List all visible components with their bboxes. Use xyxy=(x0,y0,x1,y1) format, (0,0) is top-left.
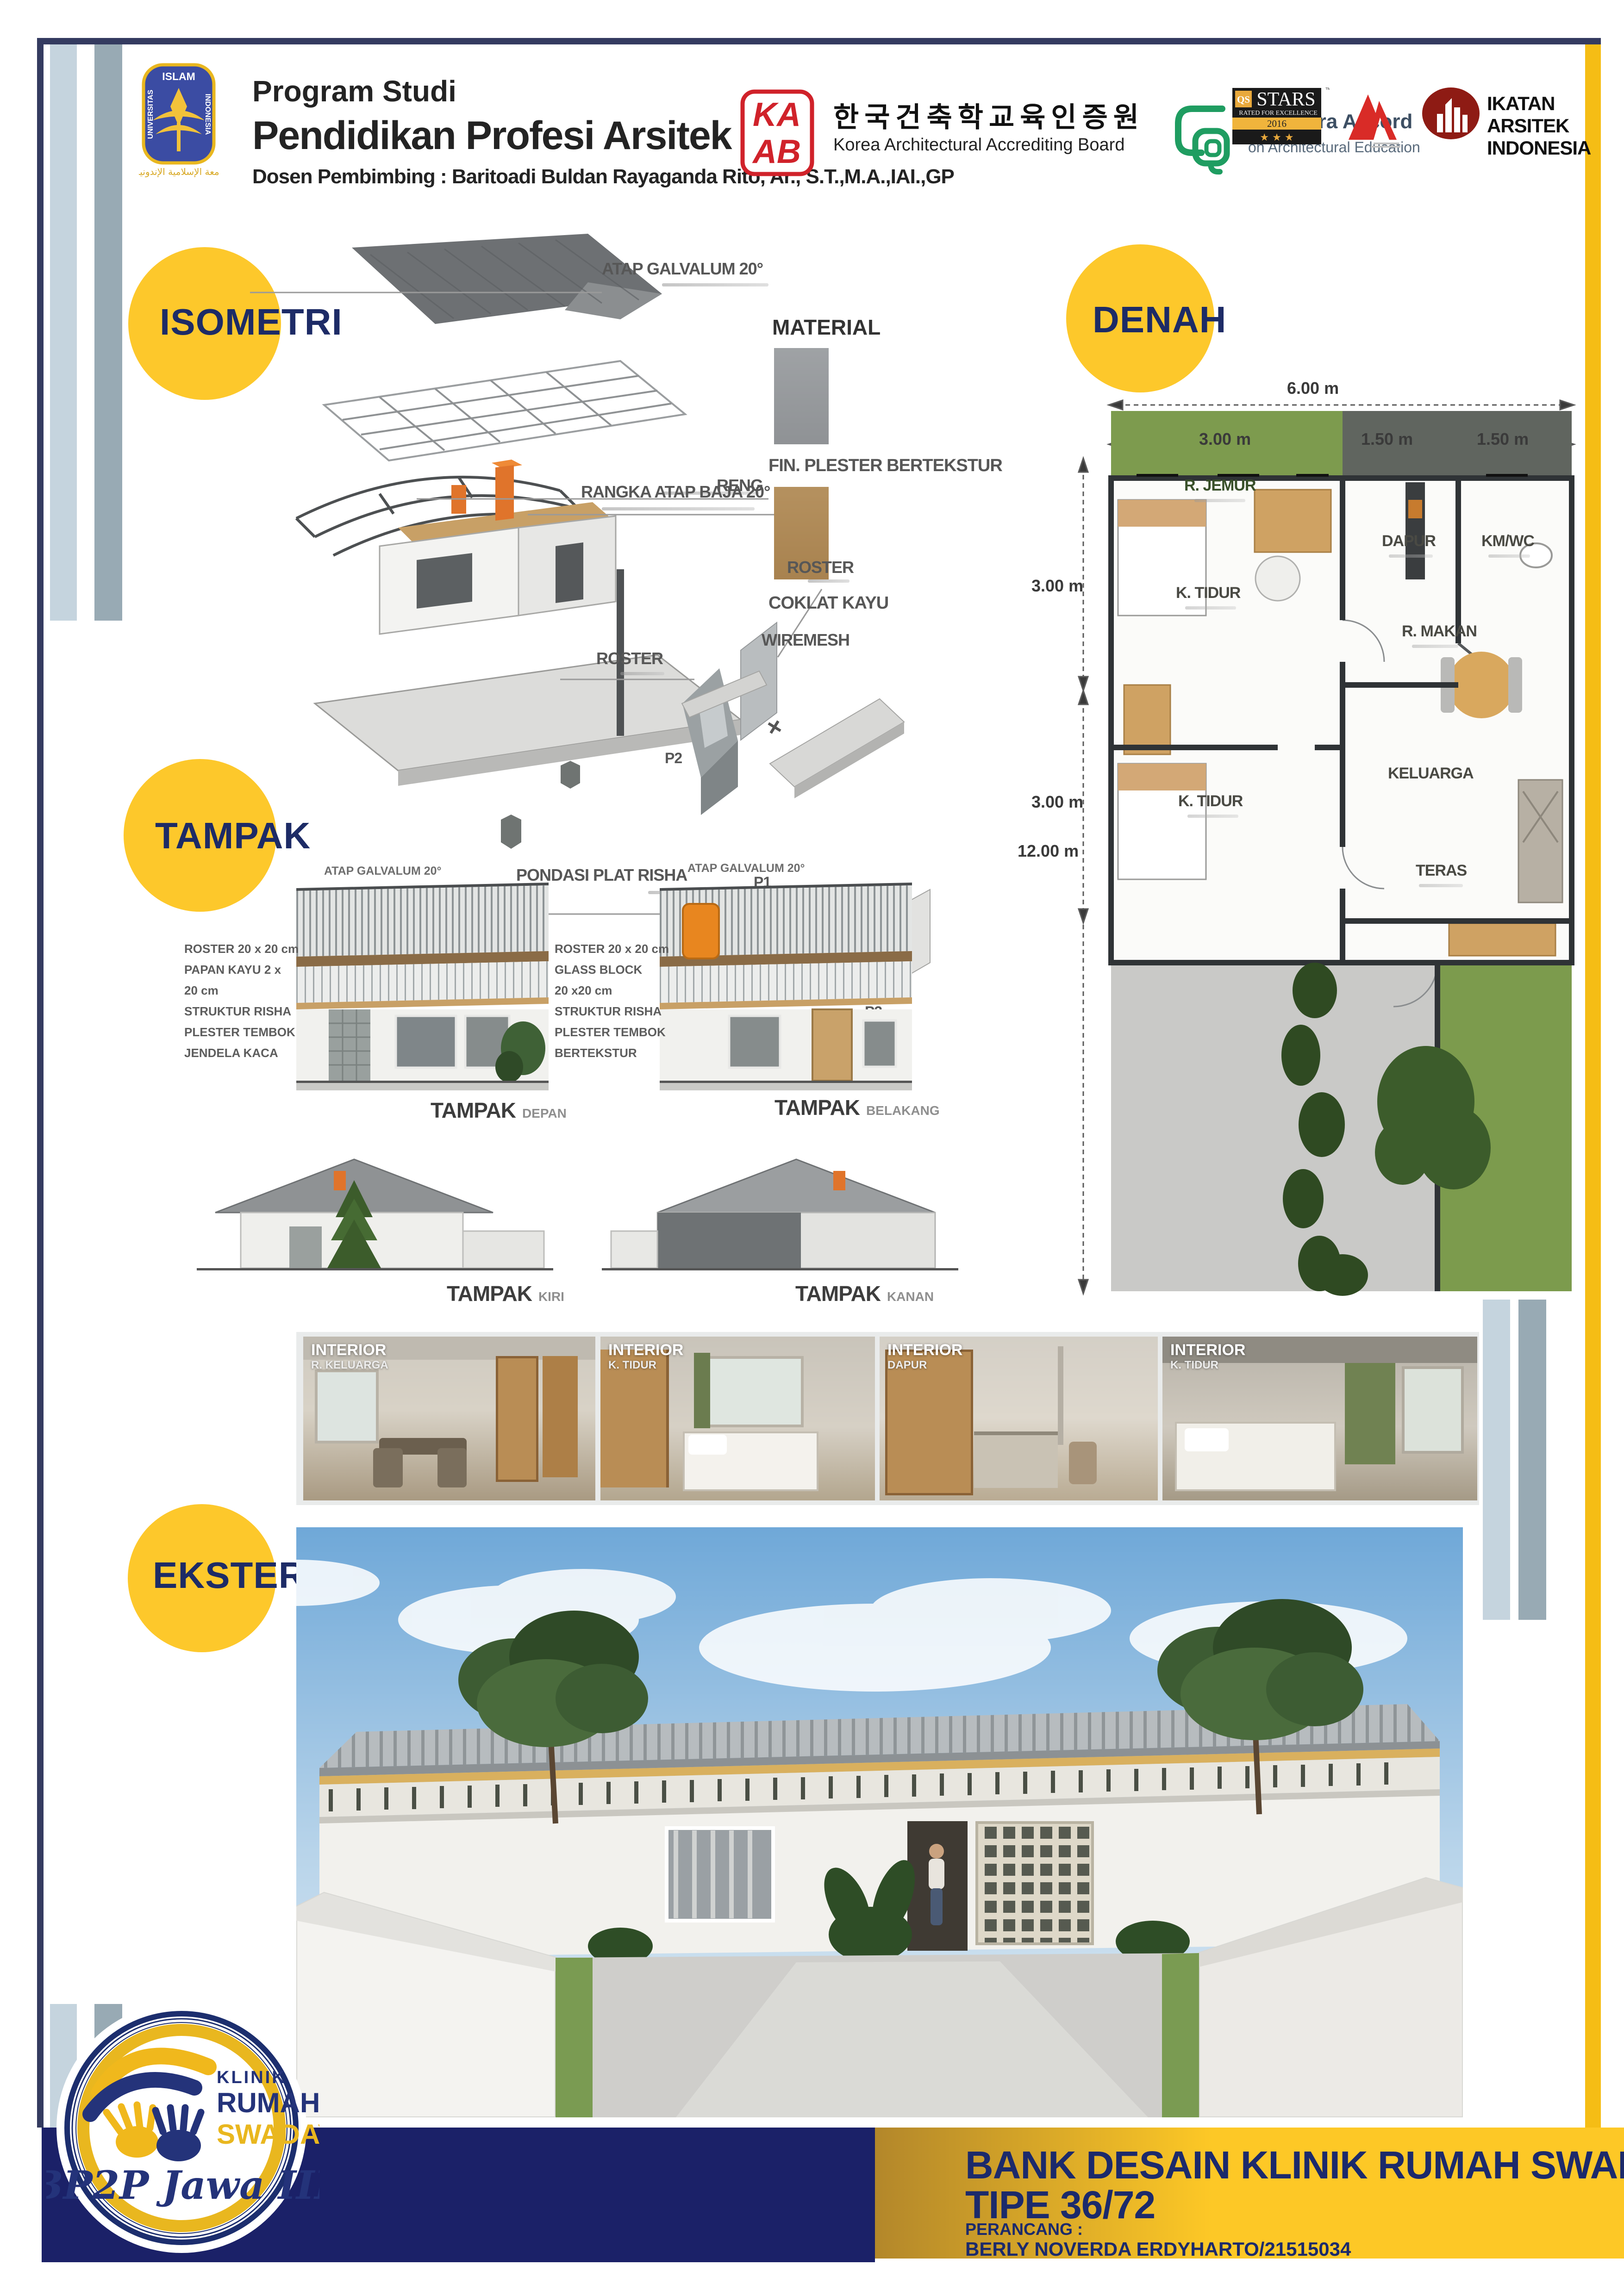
svg-text:ISLAM: ISLAM xyxy=(162,70,195,82)
klinik-rumah-swadaya-badge: KLINIK RUMAH SWADAYA BP2P Jawa III xyxy=(46,1993,319,2266)
mountain-logo xyxy=(1345,88,1405,150)
wall-corner xyxy=(1058,1346,1063,1444)
svg-text:INDONESIA: INDONESIA xyxy=(204,94,212,135)
footer-title: BANK DESAIN KLINIK RUMAH SWADAYA xyxy=(965,2143,1624,2188)
interior-tag: INTERIOR xyxy=(608,1342,683,1359)
annotation-line: GLASS BLOCK xyxy=(555,963,669,977)
room-label-tidur2: K. TIDUR xyxy=(1178,792,1243,810)
dim-top-total: 6.00 m xyxy=(1287,379,1339,398)
caption-main: TAMPAK xyxy=(795,1281,881,1306)
svg-text:RUMAH: RUMAH xyxy=(217,2087,319,2118)
elevation-kiri xyxy=(197,1139,553,1291)
room-label-dapur: DAPUR xyxy=(1382,532,1436,550)
dim-top-2: 1.50 m xyxy=(1361,429,1413,449)
border-top xyxy=(37,38,1601,44)
svg-text:الجامعة الإسلامية الإندونيسية: الجامعة الإسلامية الإندونيسية xyxy=(139,166,220,177)
material-swatch-plester xyxy=(774,348,829,444)
blur-subtext xyxy=(1412,645,1458,648)
svg-text:2016: 2016 xyxy=(1267,118,1287,129)
interior-tag: INTERIOR xyxy=(887,1342,962,1359)
caption-tampak-kiri: TAMPAK KIRI xyxy=(447,1281,564,1306)
window xyxy=(1402,1366,1464,1454)
poster-root: { "colors":{"navy":"#1d2b66","gold":"#fd… xyxy=(0,0,1624,2296)
dim-top-1: 3.00 m xyxy=(1199,429,1251,449)
iai-line2: ARSITEK xyxy=(1487,115,1591,137)
annotation-line: ROSTER 20 x 20 cm xyxy=(184,942,299,956)
svg-text:QS: QS xyxy=(1237,94,1250,105)
tampak-annotations-left: ROSTER 20 x 20 cm PAPAN KAYU 2 x 20 cm S… xyxy=(184,942,299,1067)
annotation-line: ROSTER 20 x 20 cm xyxy=(555,942,669,956)
interior-label-3: INTERIOR DAPUR xyxy=(887,1342,962,1372)
blur-subtext xyxy=(662,283,768,286)
iso-label-p2: P2 xyxy=(665,750,682,767)
blur-subtext xyxy=(1488,554,1530,558)
iso-label-roster-top: ROSTER xyxy=(787,558,854,577)
stripe-right-light xyxy=(1483,1300,1510,1620)
elevation-depan xyxy=(296,882,549,1095)
interior-tag: INTERIOR xyxy=(1170,1342,1245,1359)
room-label-jemur: R. JEMUR xyxy=(1184,477,1255,495)
chair xyxy=(437,1448,467,1487)
iai-logo xyxy=(1421,87,1482,142)
uii-logo: ISLAM UNIVERSITAS INDONESIA الجامعة الإس… xyxy=(139,62,220,180)
blur-subtext xyxy=(1419,884,1463,887)
room-label-kmwc: KM/WC xyxy=(1481,532,1534,550)
svg-text:RATED FOR EXCELLENCE: RATED FOR EXCELLENCE xyxy=(1239,110,1318,117)
iai-line3: INDONESIA xyxy=(1487,137,1591,159)
iso-label-rangka: RANGKA ATAP BAJA 20° xyxy=(581,482,770,502)
pillow xyxy=(1185,1428,1229,1451)
annotation-line: STRUKTUR RISHA xyxy=(555,1004,669,1019)
window-curtain xyxy=(705,1356,804,1427)
room-label-teras: TERAS xyxy=(1416,862,1467,880)
elevation-kanan xyxy=(602,1139,958,1291)
curtain-green xyxy=(1345,1363,1395,1464)
iso-label-wiremesh: WIREMESH xyxy=(762,630,849,650)
tampak-atap-note-2: ATAP GALVALUM 20° xyxy=(687,862,805,875)
iai-text: IKATAN ARSITEK INDONESIA xyxy=(1487,93,1591,159)
elevation-belakang xyxy=(660,882,912,1095)
blur-subtext xyxy=(602,507,755,510)
section-title-denah: DENAH xyxy=(1093,299,1226,341)
svg-text:™: ™ xyxy=(1325,86,1330,93)
door-wood xyxy=(496,1356,538,1482)
caption-sub: KIRI xyxy=(538,1289,564,1304)
stripe-left-gray xyxy=(94,44,122,621)
kaab-logo: KA AB xyxy=(740,89,823,177)
caption-tampak-belakang: TAMPAK BELAKANG xyxy=(775,1095,940,1120)
annotation-line: JENDELA KACA xyxy=(184,1046,299,1060)
caption-sub: DEPAN xyxy=(522,1106,567,1121)
iso-label-atap: ATAP GALVALUM 20° xyxy=(602,259,763,279)
interior-tag: INTERIOR xyxy=(311,1342,388,1359)
room-label-keluarga: KELUARGA xyxy=(1388,765,1474,783)
qs-stars-badge: QS STARS RATED FOR EXCELLENCE ™ 2016 ★ ★… xyxy=(1232,86,1330,144)
footer-perancang-name: BERLY NOVERDA ERDYHARTO/21515034 xyxy=(965,2238,1351,2260)
annotation-line: 20 x20 cm xyxy=(555,983,669,998)
svg-text:★ ★ ★: ★ ★ ★ xyxy=(1260,132,1293,143)
annotation-line: PLESTER TEMBOK xyxy=(555,1025,669,1039)
canberra-accord-icon xyxy=(1167,95,1241,176)
iso-label-material: MATERIAL xyxy=(772,315,881,340)
iso-label-roster-left: ROSTER xyxy=(596,649,663,668)
caption-sub: BELAKANG xyxy=(866,1103,940,1118)
iso-label-fin-plester: FIN. PLESTER BERTEKSTUR xyxy=(768,456,1002,476)
blur-subtext xyxy=(808,579,849,583)
caption-main: TAMPAK xyxy=(775,1095,860,1120)
svg-text:SWADAYA: SWADAYA xyxy=(217,2119,319,2150)
footer-perancang-label: PERANCANG : xyxy=(965,2220,1083,2239)
caption-main: TAMPAK xyxy=(431,1098,516,1123)
stripe-left-light xyxy=(50,44,77,621)
interior-room: K. TIDUR xyxy=(1170,1359,1245,1372)
interior-label-1: INTERIOR R. KELUARGA xyxy=(311,1342,388,1372)
svg-text:KA: KA xyxy=(753,96,801,133)
interior-label-2: INTERIOR K. TIDUR xyxy=(608,1342,683,1372)
counter xyxy=(974,1431,1057,1487)
tampak-annotations-right: ROSTER 20 x 20 cm GLASS BLOCK 20 x20 cm … xyxy=(555,942,669,1067)
dim-left-1: 3.00 m xyxy=(1031,576,1083,596)
pillow xyxy=(688,1435,727,1454)
room-label-tidur1: K. TIDUR xyxy=(1176,584,1240,602)
interior-room: K. TIDUR xyxy=(608,1359,683,1372)
door-wood xyxy=(543,1356,578,1477)
caption-main: TAMPAK xyxy=(447,1281,532,1306)
interior-label-4: INTERIOR K. TIDUR xyxy=(1170,1342,1245,1372)
iso-label-coklat-kayu: COKLAT KAYU xyxy=(768,593,888,613)
blur-subtext xyxy=(1185,606,1236,610)
border-left xyxy=(37,38,44,2128)
room-label-makan: R. MAKAN xyxy=(1402,622,1477,641)
annotation-line: PLESTER TEMBOK xyxy=(184,1025,299,1039)
dim-left-2: 3.00 m xyxy=(1031,792,1083,812)
stool xyxy=(1069,1442,1097,1484)
blur-subtext xyxy=(1187,815,1238,818)
supervisor-line: Dosen Pembimbing : Baritoadi Buldan Raya… xyxy=(252,165,954,188)
window xyxy=(315,1369,379,1444)
tampak-atap-note-1: ATAP GALVALUM 20° xyxy=(324,865,442,878)
interior-room: DAPUR xyxy=(887,1359,962,1372)
iai-line1: IKATAN xyxy=(1487,93,1591,115)
blur-subtext xyxy=(1389,554,1433,558)
kaab-english: Korea Architectural Accrediting Board xyxy=(833,135,1124,155)
annotation-line: PAPAN KAYU 2 x xyxy=(184,963,299,977)
kaab-korean: 한국건축학교육인증원 xyxy=(833,95,1144,135)
interior-room: R. KELUARGA xyxy=(311,1359,388,1372)
annotation-line: 20 cm xyxy=(184,983,299,998)
svg-text:AB: AB xyxy=(752,133,801,170)
caption-tampak-depan: TAMPAK DEPAN xyxy=(431,1098,567,1123)
dim-top-3: 1.50 m xyxy=(1477,429,1529,449)
blur-subtext xyxy=(620,672,664,675)
curtain-green xyxy=(694,1353,711,1428)
stripe-right-gray xyxy=(1518,1300,1546,1620)
caption-sub: KANAN xyxy=(887,1289,934,1304)
dim-left-total: 12.00 m xyxy=(1018,841,1079,861)
svg-text:STARS: STARS xyxy=(1256,89,1315,110)
svg-text:BP2P Jawa III: BP2P Jawa III xyxy=(46,2162,319,2208)
chair xyxy=(373,1448,402,1487)
svg-text:UNIVERSITAS: UNIVERSITAS xyxy=(147,89,155,139)
floor-plan-drawing xyxy=(1018,361,1593,1314)
blur-subtext xyxy=(1194,499,1245,502)
svg-text:KLINIK: KLINIK xyxy=(217,2068,287,2087)
annotation-line: BERTEKSTUR xyxy=(555,1046,669,1060)
annotation-line: STRUKTUR RISHA xyxy=(184,1004,299,1019)
exterior-render xyxy=(296,1527,1463,2117)
caption-tampak-kanan: TAMPAK KANAN xyxy=(795,1281,934,1306)
